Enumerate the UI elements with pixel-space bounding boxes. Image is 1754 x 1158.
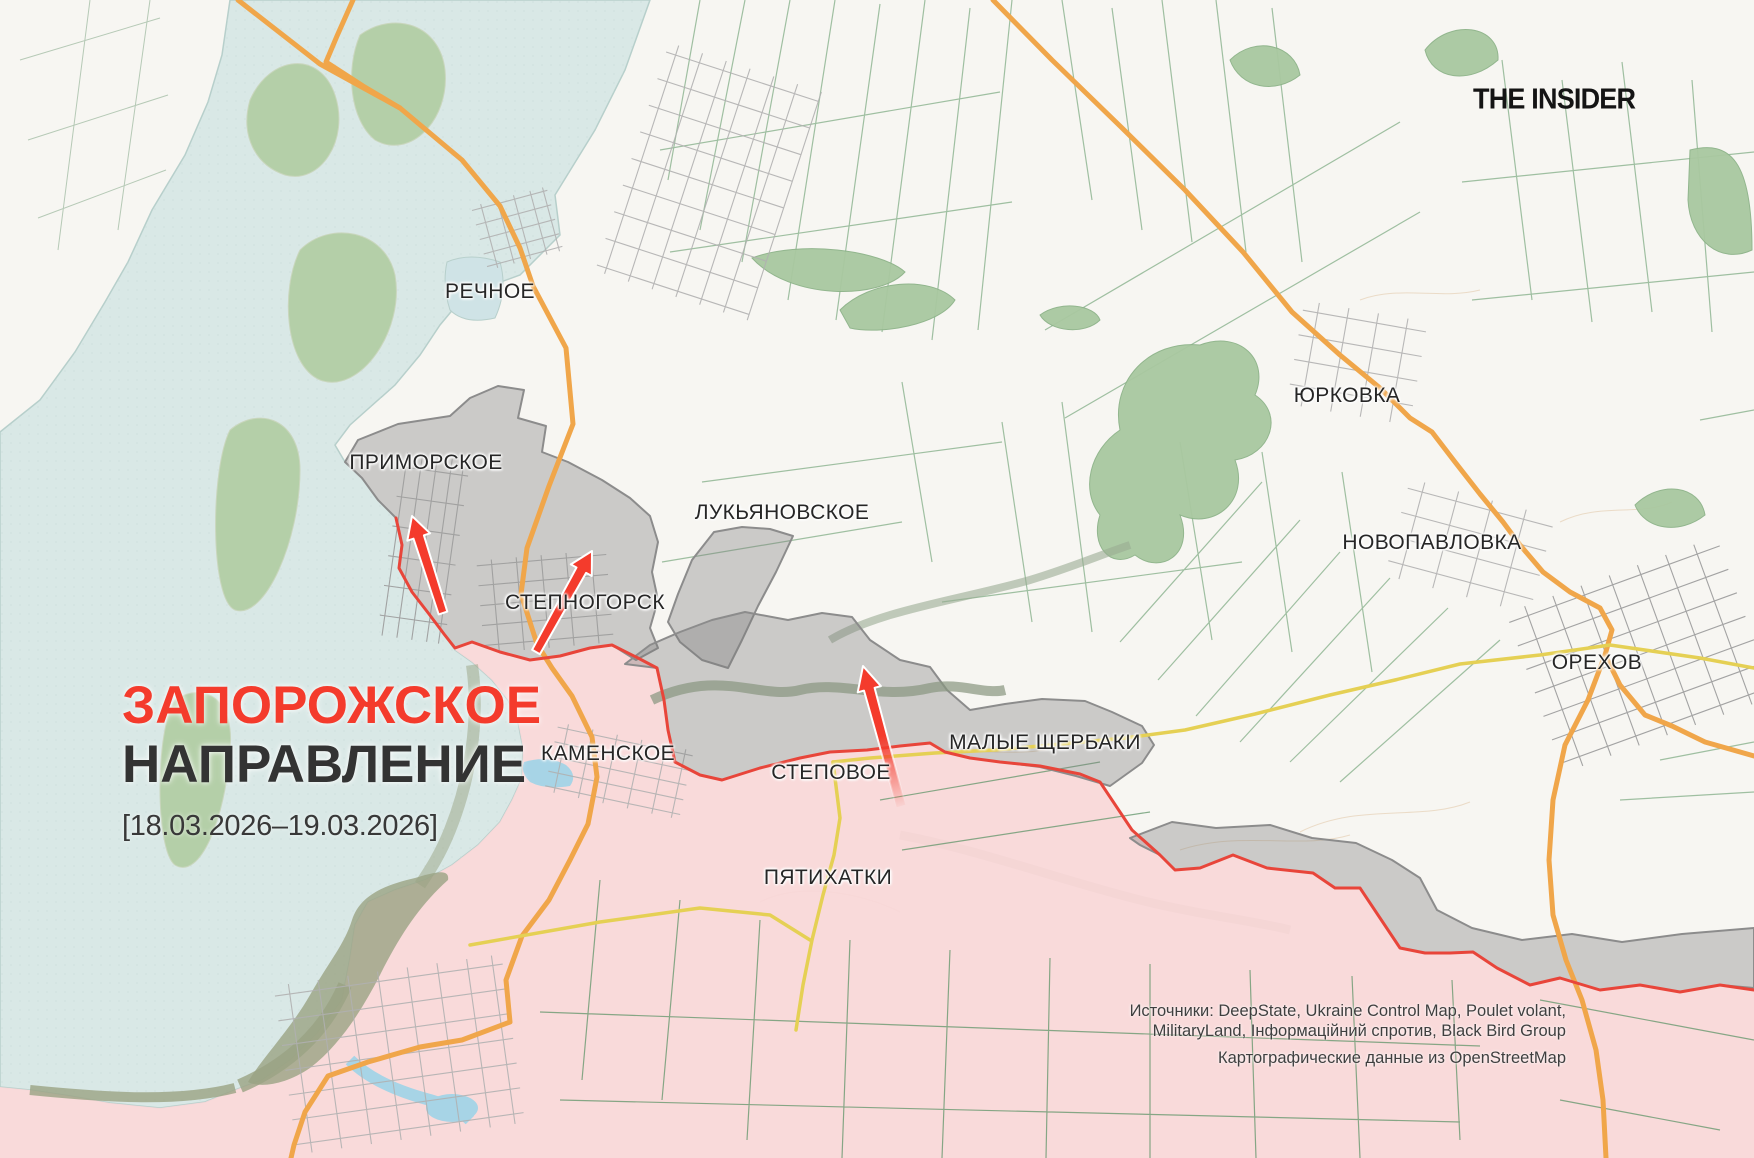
- map-subtitle: НАПРАВЛЕНИЕ: [122, 737, 541, 792]
- title-block: ЗАПОРОЖСКОЕ НАПРАВЛЕНИЕ [18.03.2026–19.0…: [122, 678, 541, 843]
- date-range: [18.03.2026–19.03.2026]: [122, 810, 541, 843]
- attribution: Источники: DeepState, Ukraine Control Ma…: [1130, 1001, 1566, 1068]
- base-map: [0, 0, 1754, 1158]
- map-credit: Картографические данные из OpenStreetMap: [1130, 1048, 1566, 1068]
- sources-line-2: MilitaryLand, Інформаційний спротив, Bla…: [1130, 1021, 1566, 1041]
- sources-line-1: Источники: DeepState, Ukraine Control Ma…: [1130, 1001, 1566, 1021]
- publisher-logo: THE INSIDER: [1473, 83, 1635, 116]
- map-title: ЗАПОРОЖСКОЕ: [122, 678, 541, 733]
- map-canvas: РЕЧНОЕ ПРИМОРСКОЕ ЛУКЬЯНОВСКОЕ СТЕПНОГОР…: [0, 0, 1754, 1158]
